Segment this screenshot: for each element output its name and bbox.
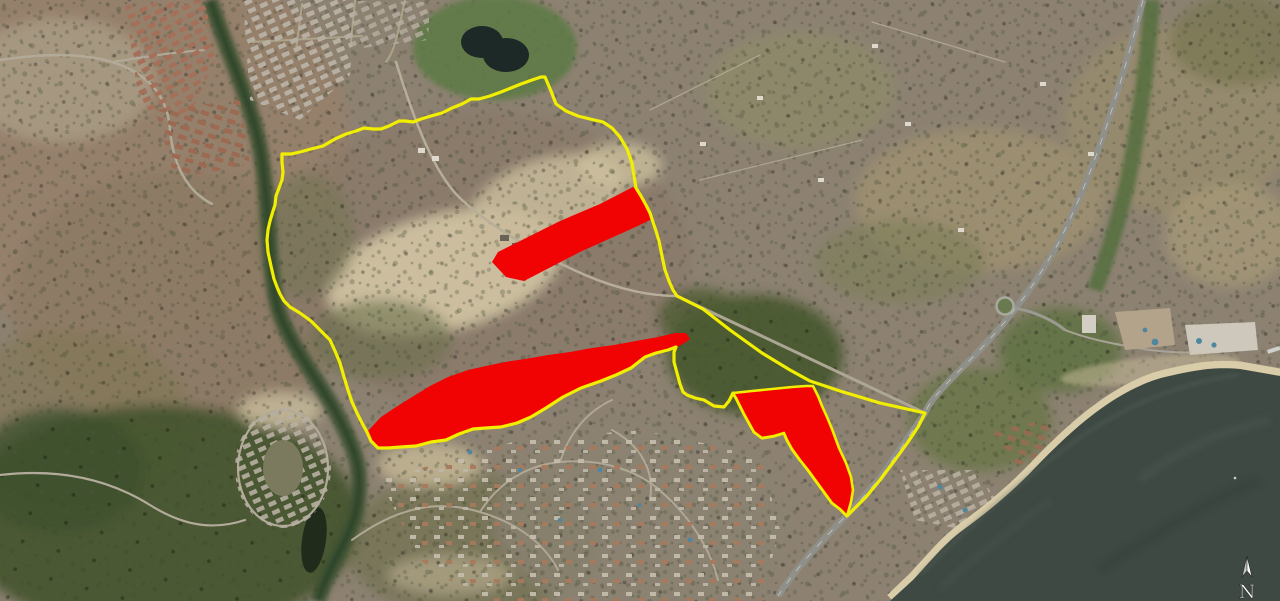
map-viewport[interactable]: N [0,0,1280,601]
lake [413,0,577,100]
roundabout [997,298,1014,315]
satellite-image: N [0,0,1280,601]
north-label: N [1239,581,1256,601]
boat [1234,477,1237,480]
